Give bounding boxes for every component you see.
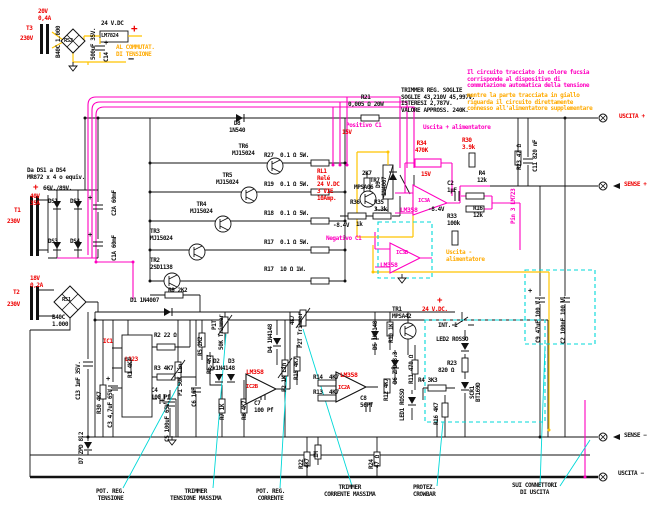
r21-label: R21 0,005 Ω 20W	[348, 95, 383, 108]
trimmer-threshold-note: TRIMMER REG. SOGLIE SOGLIE 43,210V 45,99…	[401, 88, 475, 115]
sense-minus-label: SENSE −	[624, 433, 647, 440]
c2-mid-label: C2 1µF	[447, 181, 457, 194]
trimmer-tensione-callout: TRIMMER TENSIONE MASSIMA	[170, 489, 221, 502]
ic3a-part: LM358	[400, 207, 418, 214]
p1-label: P1 50K Lin	[178, 364, 185, 396]
d7-label: D7 ZPD 8.2	[79, 432, 86, 464]
tr1-label: TR1 MPSA42	[392, 307, 411, 320]
uscita-minus-label: USCITA −	[618, 471, 644, 478]
ic1-label: IC1	[103, 339, 113, 346]
ic3a-label: IC3A	[418, 198, 430, 204]
plus-24v: +	[437, 296, 442, 306]
c14-value: 500uF 35V.	[91, 28, 98, 60]
r19-label: R19 0.1 Ω 5W.	[264, 182, 309, 189]
r7-label: R7 1K	[220, 404, 227, 420]
tr4-label: TR4 MJ15024	[190, 202, 213, 215]
pot-reg-corrente-callout: POT. REG. CORRENTE	[256, 489, 285, 502]
tr6-label: TR6 MJ15024	[232, 144, 255, 157]
c3-plus: +	[106, 376, 110, 384]
r30b-label: R30 4K7	[97, 392, 104, 415]
rs1-part: B40C 1.000	[52, 315, 68, 328]
d2d3-part: 2x1N4148	[209, 366, 235, 373]
ic3b-part: LM358	[380, 262, 398, 269]
aux-minus: −	[128, 54, 134, 65]
r33-label: R33 100k	[447, 214, 460, 227]
c3-label: C3 4,7uF 65V.	[108, 386, 115, 428]
c13-label: C13 1mF 35V.	[76, 361, 83, 400]
c11-label: C11 820 nF	[533, 140, 540, 172]
led2-label: LED2 ROSSO	[436, 337, 468, 344]
uscita-minus-alim: Uscita - alimentatore	[446, 250, 485, 263]
r24-value: 47 Ω	[375, 455, 382, 468]
schematic-page: 20V 0,4AT3230VB40C 1.000RS2500uF 35V.C14…	[0, 0, 669, 519]
c1a-plus: +	[88, 232, 92, 240]
yellow-circuit-note: mentre la parte tracciata in giallo rigu…	[467, 93, 592, 113]
r22-value: 4K7	[305, 458, 312, 468]
t3-secondary-rating: 20V 0,4A	[38, 9, 51, 22]
p1t-value: 50K Trimmer	[219, 315, 226, 350]
uscita-plus-label: USCITA +	[619, 114, 645, 121]
protez-crowbar-callout: PROTEZ. CROWBAR	[413, 485, 436, 498]
c14-label: C14	[104, 52, 111, 62]
c5-plus: +	[160, 398, 164, 406]
tr7-part: MPSA06	[354, 185, 373, 192]
p2-label: P2 1K Lin	[282, 363, 289, 392]
r36-value: 1k	[356, 222, 362, 229]
c7-label: C7 100 Pf	[254, 401, 273, 414]
t2-label: T2	[13, 290, 19, 297]
fuchsia-circuit-note: Il circuito tracciato in colore fucsia c…	[467, 70, 589, 90]
r36-label: R36	[350, 200, 360, 207]
tr2-label: TR2 2SD1138	[150, 258, 173, 271]
int1-label: INT. 1	[438, 323, 457, 330]
ic2a-part: LM358	[340, 372, 358, 379]
rs1-label: RS1	[62, 297, 71, 303]
sense-plus-label: SENSE +	[624, 182, 647, 189]
r5-label: R5 2K2	[198, 337, 205, 356]
ic3a-neg-supply: -8.4V	[428, 207, 444, 214]
c14-plus: +	[104, 40, 108, 48]
connettori-callout: SUI CONNETTORI DI USCITA	[512, 483, 557, 496]
r3-label: R3 4K7	[154, 366, 173, 373]
r18-label: R18 0.1 Ω 5W.	[264, 211, 309, 218]
commutator-note: AL COMMUTAT. DI TENSIONE	[116, 45, 155, 58]
rs2-label: RS2	[64, 38, 73, 44]
p2t-label: P2T Trimmer	[298, 313, 305, 348]
c2a-label: C2A 60mF	[112, 190, 119, 216]
ds3-label: DS3	[48, 239, 58, 246]
p2t-value: 4K7	[290, 315, 297, 325]
rl1-label: RL1 Relé 24 V.DC 3 VIE 10Amp.	[317, 169, 340, 203]
r12-label: R12 4K7	[384, 379, 391, 402]
d5-label: D5 1N4148	[373, 321, 380, 350]
r13-label: R13 4K7	[313, 390, 339, 397]
c2a-plus: +	[88, 195, 92, 203]
r11-label: R11 470 Ω	[409, 355, 416, 384]
t3-label: T3	[26, 26, 32, 33]
d6-label: D6 ZPD 3.3	[393, 352, 400, 384]
d8-label: D8 1N540	[229, 121, 245, 134]
r2-label: R2 22 Ω	[154, 333, 177, 340]
ic3a-supply: 15V	[421, 172, 431, 179]
r30-label: R30 3.9k	[462, 138, 475, 151]
uscita-plus-alim: Uscita + alimentatore	[423, 125, 490, 132]
t1-primary: 230V	[7, 219, 20, 226]
ds1-label: DS1	[48, 199, 58, 206]
t1-label: T1	[14, 208, 20, 215]
r17b-label: R17 10 Ω 1W.	[264, 267, 306, 274]
plus-66v: +	[33, 183, 38, 193]
r16-label: R16 12k	[473, 206, 483, 219]
c8-label: C8 56Pf	[360, 396, 373, 409]
t1-secondary-rating: 40V 35A	[30, 194, 40, 207]
c1a-label: C1A 60mF	[112, 235, 119, 261]
magenta-wires	[57, 97, 585, 477]
r8-label: R8 4K7	[242, 401, 249, 420]
ic2a-label: IC2A	[338, 385, 350, 391]
r10-label: R10 1K	[389, 324, 396, 343]
t2-primary: 230V	[7, 302, 20, 309]
voltage-66-89: 66V./89V.	[43, 186, 72, 193]
ic3b-label: IC3B	[396, 250, 408, 256]
ds2-label: DS2	[70, 199, 80, 206]
c2-out-label: C2 100nF 100 V.	[561, 296, 568, 344]
ic3b-neg-supply: -8.4V	[333, 223, 349, 230]
cyan-overlays	[123, 222, 595, 488]
t3-primary: 230V	[20, 36, 33, 43]
rs2-part: B40C 1.000	[56, 26, 63, 58]
pin3-lm723: Pin 3 LM723	[511, 189, 518, 224]
t2-secondary-rating: 18V 0,2A	[30, 276, 43, 289]
aux-output-voltage: 24 V.DC	[101, 21, 124, 28]
pot-reg-tensione-callout: POT. REG. TENSIONE	[96, 489, 125, 502]
r16b-label: R16 4K7	[434, 403, 441, 426]
d1-label: D1 1N4007	[130, 298, 159, 305]
ic2b-label: IC2B	[246, 384, 258, 390]
scr1-part: BT169D	[476, 383, 483, 402]
d9-part: 1N4007	[382, 177, 389, 196]
c9-plus: +	[528, 288, 532, 296]
r1-label: R1 4K7	[128, 359, 135, 378]
r4b-label: R4 3K3	[418, 378, 437, 385]
r14-label: R14 4K7	[313, 375, 339, 382]
v24dc-label: 24 V.DC.	[422, 307, 448, 314]
led1-label: LED1 ROSSO	[400, 389, 407, 421]
negativo-c1-label: Negativo C1	[326, 236, 361, 243]
trimmer-corrente-callout: TRIMMER CORRENTE MASSIMA	[324, 485, 375, 498]
r17-label: R17 0.1 Ω 5W.	[264, 240, 309, 247]
ds4-label: DS4	[70, 239, 80, 246]
r23b-value: 820 Ω	[438, 368, 454, 375]
lm7824-label: LM7824	[101, 33, 118, 39]
tr5-label: TR5 MJ15024	[216, 173, 239, 186]
c6-label: C6 1nF	[192, 388, 199, 407]
r15-label: R15 4K7	[294, 358, 301, 381]
r-1m-label: 1M	[314, 452, 321, 458]
tr3-label: TR3 MJ15024	[150, 229, 173, 242]
positivo-15v: 15V	[342, 130, 352, 137]
r27-label: R27 0.1 Ω 5W.	[264, 153, 309, 160]
c9-label: C9 47uF 100 V.	[536, 298, 543, 343]
ds-diodes-note: Da DS1 a DS4 MR872 x 4 o equiv.	[27, 168, 85, 181]
d4-label: D4 1N4148	[268, 324, 275, 353]
r34-label: R34 470K	[415, 141, 428, 154]
c5-label: C5 100uF 65V.	[165, 400, 172, 442]
ic2b-part: LM358	[246, 369, 264, 376]
aux-plus: +	[131, 23, 137, 35]
r35-label: R35 3.3k	[374, 200, 387, 213]
r4-label: R4 12k	[477, 171, 487, 184]
r9-label: R9 2K2	[168, 288, 187, 295]
r23-label: R23 47 Ω	[517, 144, 524, 170]
